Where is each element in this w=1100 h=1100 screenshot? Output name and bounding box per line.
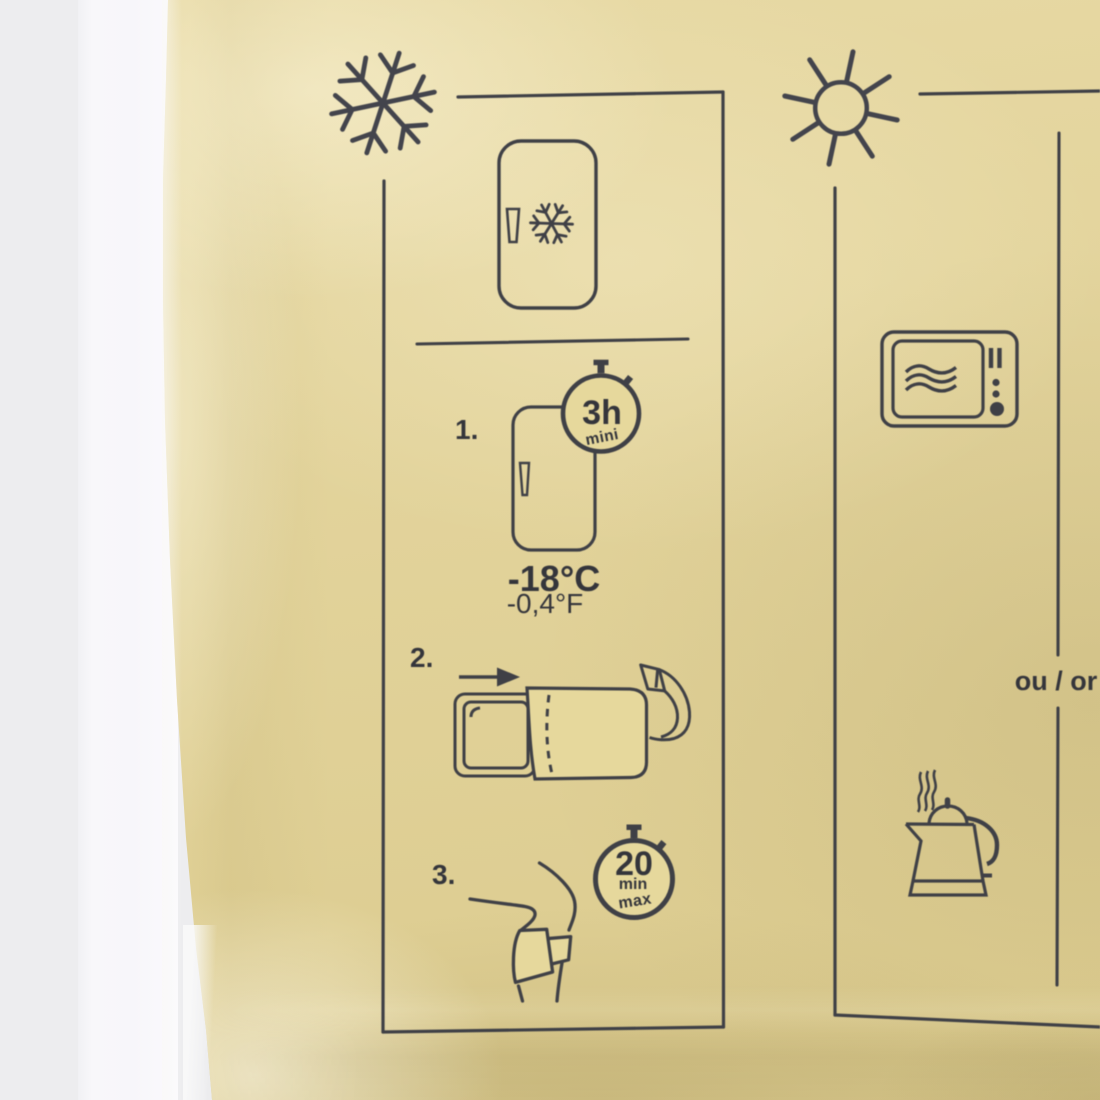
svg-text:2.: 2.	[410, 642, 433, 673]
svg-text:3.: 3.	[432, 859, 455, 890]
svg-text:min: min	[619, 876, 647, 893]
svg-text:1.: 1.	[455, 414, 478, 445]
svg-text:ou / or: ou / or	[1015, 666, 1098, 696]
svg-text:-0,4°F: -0,4°F	[507, 588, 584, 619]
